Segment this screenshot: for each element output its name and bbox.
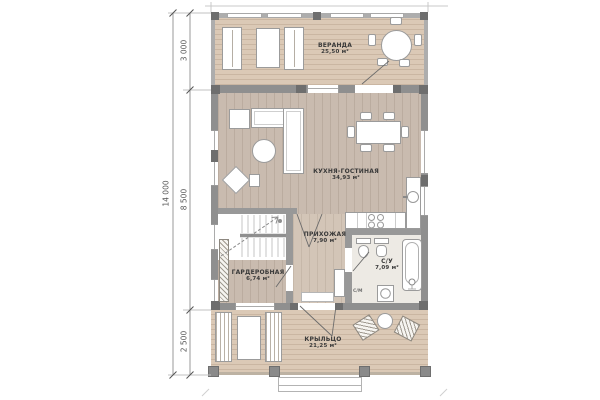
chair [383, 112, 395, 120]
armchair [229, 109, 250, 129]
sun-lounger [265, 312, 282, 362]
chair [383, 144, 395, 152]
sun-lounger [222, 27, 242, 70]
railing-opening [227, 13, 262, 18]
window-kitchen-right [421, 186, 428, 216]
room-label-porch: КРЫЛЬЦО 21,25 м² [283, 336, 363, 350]
veranda-railing-left [211, 13, 215, 85]
railing-opening [330, 13, 364, 18]
window-veranda [307, 85, 339, 93]
chair [360, 112, 372, 120]
dimension-house: 8 500 [180, 175, 189, 225]
railing-opening [267, 13, 302, 18]
dimension-porch: 2 500 [180, 317, 189, 367]
room-name: ВЕРАНДА [318, 42, 352, 49]
counter-divider [395, 213, 396, 228]
kitchen-counter [345, 212, 406, 229]
round-dining-table [381, 30, 412, 61]
room-name: ГАРДЕРОБНАЯ [232, 269, 285, 276]
pier [419, 301, 428, 310]
porch-post [269, 366, 280, 377]
corner-sofa [283, 108, 304, 174]
washing-machine [377, 285, 394, 302]
room-name: С/У [381, 258, 393, 265]
side-table [256, 28, 280, 68]
pier [211, 85, 220, 94]
porch-steps [278, 377, 362, 392]
entrance-mat [301, 292, 334, 302]
wall-left [211, 85, 218, 310]
window-stairs-left [211, 224, 218, 250]
sink-base [374, 238, 389, 244]
coffee-table [252, 139, 276, 163]
chair [360, 144, 372, 152]
room-area: 7,09 м² [375, 265, 399, 272]
window-wardrobe-left [211, 279, 218, 302]
sink-bowl [376, 245, 387, 257]
veranda-railing-right [424, 13, 428, 85]
chair [377, 58, 388, 66]
room-label-hallway: ПРИХОЖАЯ 7,90 м² [285, 231, 365, 245]
room-label-wardrobe: ГАРДЕРОБНАЯ 6,74 м² [218, 269, 298, 283]
dining-table [356, 121, 401, 144]
chair [399, 59, 410, 67]
pier [393, 85, 401, 93]
extension-lines [168, 13, 211, 375]
pier [335, 303, 343, 310]
dimension-veranda: 3 000 [180, 26, 189, 76]
pier [419, 85, 428, 94]
counter-divider [357, 213, 358, 228]
room-area: 7,90 м² [313, 238, 337, 245]
room-area: 6,74 м² [246, 276, 270, 283]
room-area: 34,93 м² [332, 175, 360, 182]
washing-machine-label: С/М [353, 289, 362, 294]
porch-post [359, 366, 370, 377]
sun-lounger [215, 312, 232, 362]
round-table [377, 313, 393, 329]
porch-post [420, 366, 431, 377]
dimension-overall: 14 000 [162, 169, 171, 219]
veranda-post [211, 12, 219, 20]
side-table [237, 316, 261, 360]
dimension-lines [168, 10, 211, 379]
room-label-kitchen-living: КУХНЯ-ГОСТИНАЯ 34,93 м² [296, 168, 396, 182]
pier [211, 150, 218, 162]
room-label-veranda: ВЕРАНДА 25,50 м² [295, 42, 375, 56]
chair [390, 17, 402, 25]
window-wardrobe-bottom [235, 303, 275, 310]
roof-overhang-line [205, 2, 448, 12]
bath-door-opening [345, 248, 352, 272]
room-name: КРЫЛЬЦО [304, 336, 341, 343]
chair [347, 126, 355, 138]
pier [211, 301, 220, 310]
hallway-cabinet [334, 269, 345, 297]
window-living-right [421, 130, 428, 174]
side-table [249, 174, 260, 187]
veranda-post [420, 12, 428, 20]
pier [296, 85, 306, 93]
room-label-bathroom: С/У 7,09 м² [357, 258, 417, 272]
floor-plan: ВЕРАНДА 25,50 м² КУХНЯ-ГОСТИНАЯ 34,93 м²… [0, 0, 600, 400]
window-living-left-2 [211, 161, 218, 186]
chair [414, 34, 422, 46]
kitchen-counter [406, 177, 421, 229]
pier [290, 303, 298, 310]
room-area: 25,50 м² [321, 49, 349, 56]
chair [401, 126, 409, 138]
porch-edge [211, 372, 428, 375]
pier [421, 175, 428, 186]
entrance-door-opening [298, 303, 335, 310]
room-area: 21,25 м² [309, 343, 337, 350]
counter-divider [366, 213, 367, 228]
room-name: ПРИХОЖАЯ [304, 231, 346, 238]
porch-post [208, 366, 219, 377]
room-name: КУХНЯ-ГОСТИНАЯ [313, 168, 379, 175]
door-to-veranda [355, 85, 393, 93]
veranda-post [313, 12, 321, 20]
